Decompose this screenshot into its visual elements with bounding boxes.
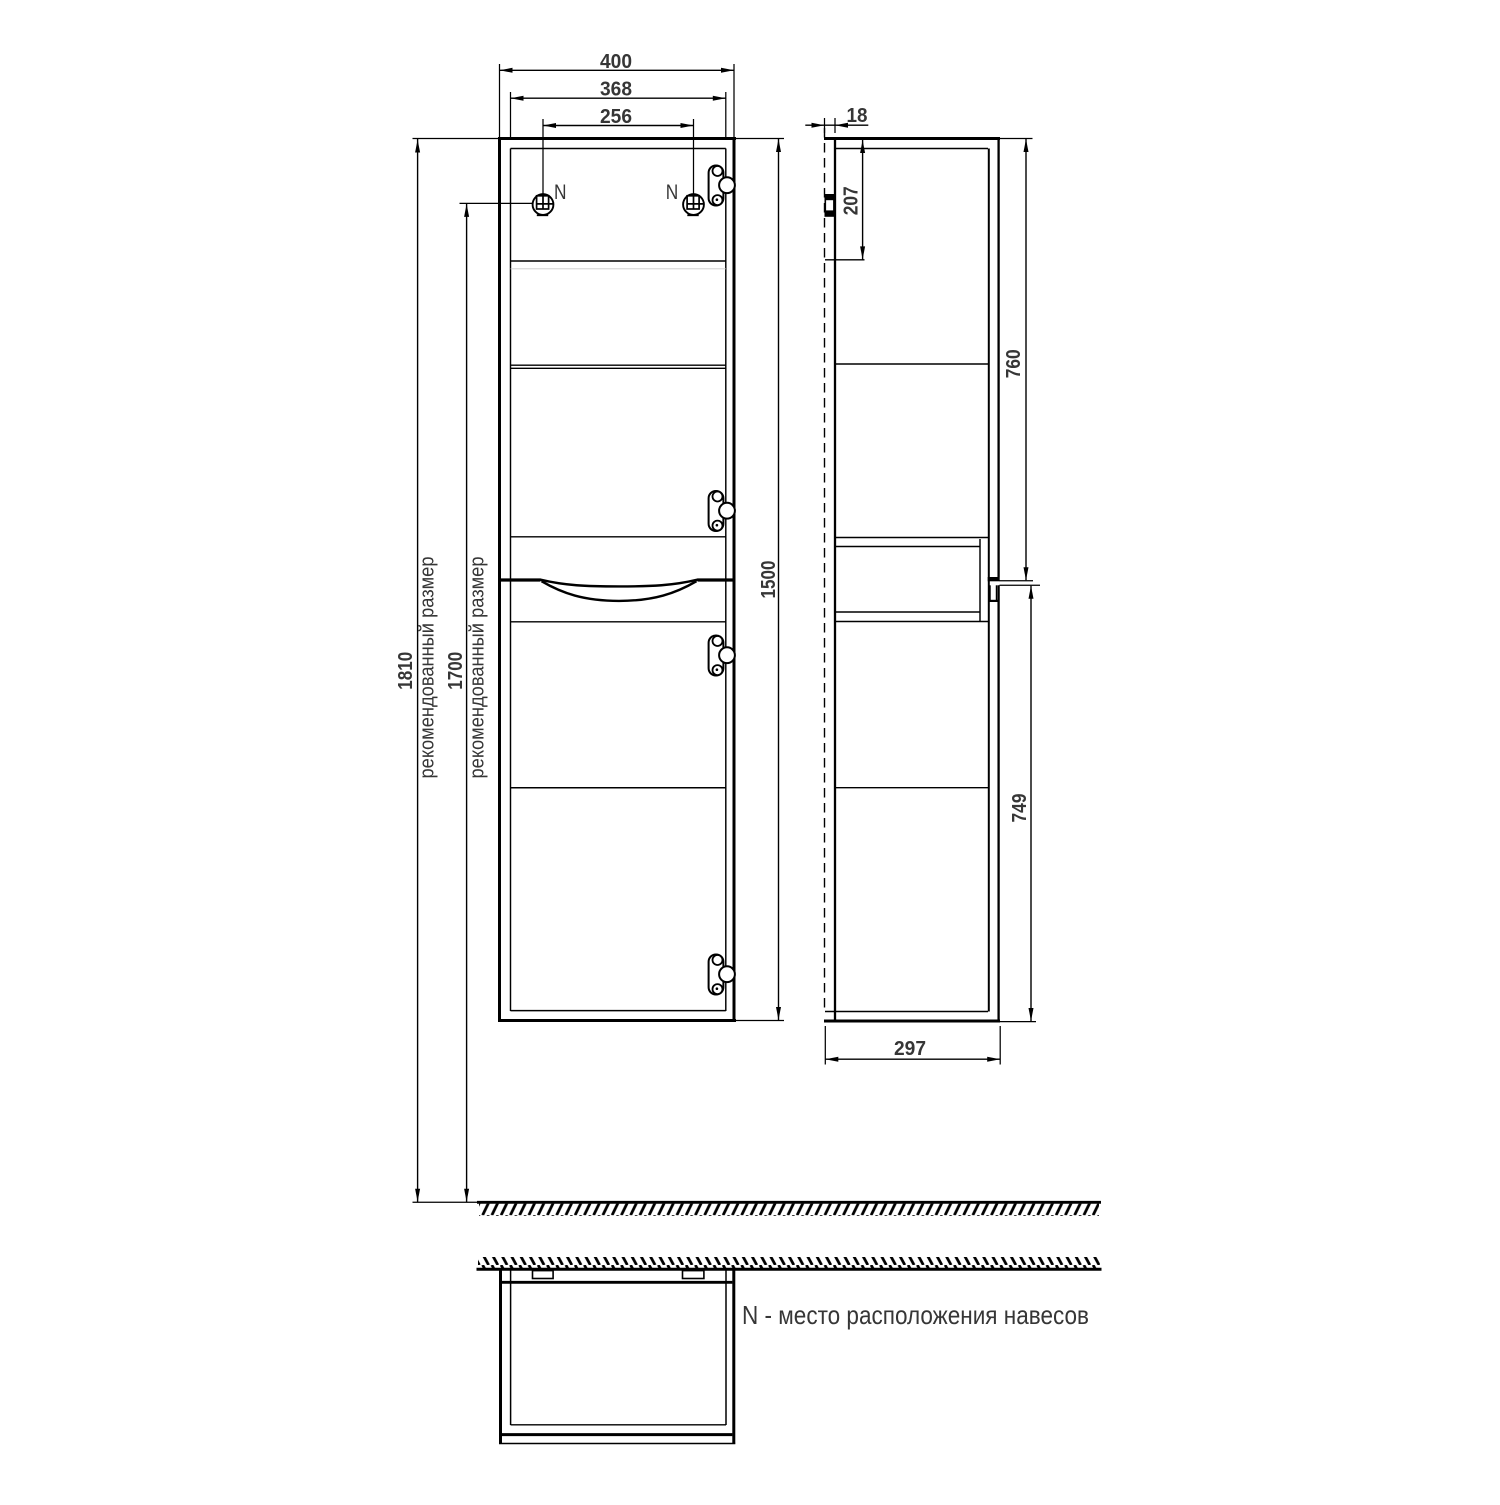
svg-text:N - место расположения навесов: N - место расположения навесов [742, 1300, 1089, 1330]
svg-text:N: N [666, 181, 679, 204]
svg-text:760: 760 [1003, 349, 1025, 378]
svg-text:1500: 1500 [758, 561, 780, 599]
svg-text:рекомендованный размер: рекомендованный размер [417, 557, 439, 779]
svg-text:1700: 1700 [445, 652, 467, 690]
svg-text:256: 256 [600, 106, 632, 128]
svg-text:18: 18 [847, 105, 868, 127]
svg-text:400: 400 [600, 51, 632, 73]
svg-text:207: 207 [840, 186, 862, 215]
svg-text:1810: 1810 [395, 652, 417, 690]
svg-text:297: 297 [894, 1038, 926, 1060]
svg-text:368: 368 [600, 79, 632, 101]
svg-text:N: N [554, 181, 567, 204]
svg-text:749: 749 [1009, 794, 1031, 823]
svg-text:рекомендованный размер: рекомендованный размер [467, 557, 489, 779]
